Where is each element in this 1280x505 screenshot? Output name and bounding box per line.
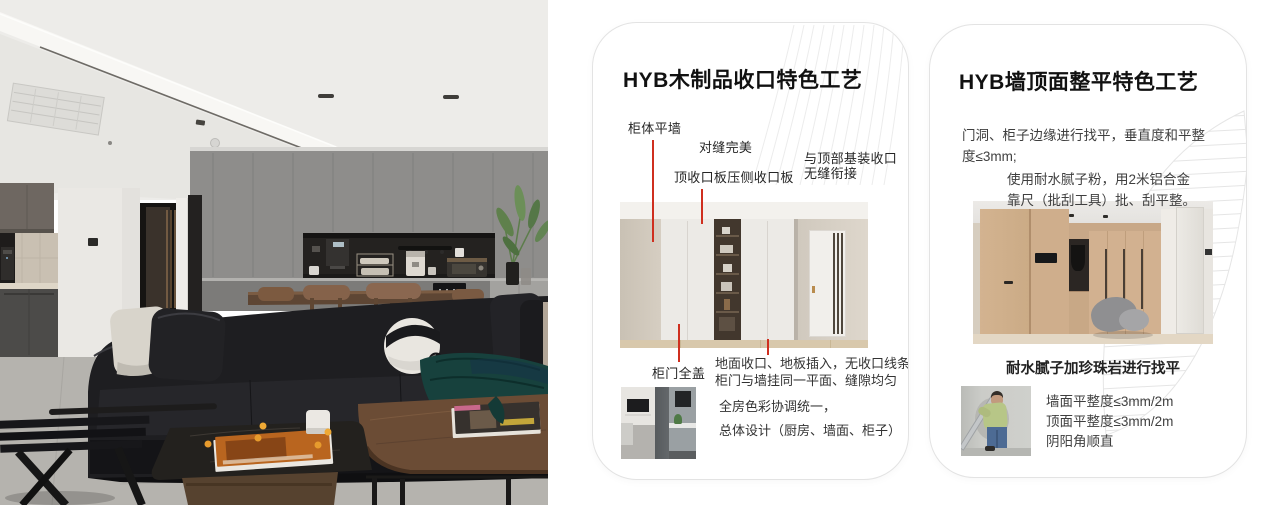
plank-line (680, 340, 681, 348)
leader-line-top-panel (701, 189, 703, 224)
leader-line-wall-flush (652, 140, 654, 242)
p2-wall-object (1205, 249, 1212, 255)
wardrobe-photo-caption: 耐水腻子加珍珠岩进行找平 (973, 357, 1213, 378)
p2-drawers (1069, 291, 1089, 335)
shelf-basket (719, 317, 735, 331)
render-left-wall (620, 219, 661, 340)
callout-cabinet-flush-wall: 柜体平墙 (628, 121, 681, 136)
render-cabinet-shadow (794, 219, 798, 340)
p2-downlight (1103, 215, 1108, 218)
card1-footer-line2: 总体设计（厨房、墙面、柜子） (719, 419, 901, 443)
cabinet-render-image (620, 202, 868, 348)
mini1-appliance (675, 391, 691, 407)
render-door (809, 230, 846, 337)
render-door-seam (767, 221, 768, 340)
living-room-photo (0, 0, 548, 505)
shelf-bottle (724, 299, 730, 310)
shelf-board (716, 292, 739, 294)
callout-ceiling-joint-line1: 与顶部基装收口 (804, 151, 897, 166)
mini1-plant (674, 414, 682, 424)
result-ceiling-flatness: 顶面平整度≤3mm/2m (1046, 412, 1173, 432)
card-wall-leveling-craft: HYB墙顶面整平特色工艺 门洞、柜子边缘进行找平，垂直度和平整度≤3mm; 使用… (929, 24, 1247, 478)
door-slat (833, 233, 835, 334)
p2-door-handle (1004, 281, 1013, 284)
page: HYB木制品收口特色工艺 柜体平墙 对缝完美 顶收口板压侧收口板 与顶部基装收口… (0, 0, 1280, 505)
leader-line-floor-joint (767, 339, 769, 355)
shelf-board (716, 235, 739, 237)
door-slat (837, 233, 839, 334)
p2-white-door (1176, 207, 1204, 334)
p2-hanging-clothes (1071, 245, 1085, 271)
card2-paragraph-putty-line2: 靠尺（批刮工具）批、刮平整。 (1007, 190, 1196, 211)
card1-title: HYB木制品收口特色工艺 (623, 64, 862, 94)
shelf-item (723, 264, 732, 272)
callout-full-cover-door: 柜门全盖 (652, 366, 705, 381)
shelf-board (716, 273, 739, 275)
shelf-board (716, 254, 739, 256)
living-room-photo-art (0, 0, 548, 505)
color-scheme-photo (621, 387, 696, 459)
shelf-board (716, 311, 739, 313)
mini1-console (625, 414, 651, 416)
worker-jeans-seam (996, 430, 998, 448)
card2-title: HYB墙顶面整平特色工艺 (959, 66, 1198, 96)
p2-room-beyond (1204, 209, 1213, 334)
p2-handle-slit (1141, 249, 1143, 309)
kitchen (0, 183, 58, 357)
callout-ceiling-joint-line2: 无缝衔接 (804, 166, 897, 181)
p2-left-wall (973, 223, 980, 344)
result-corners-straight: 阴阳角顺直 (1046, 432, 1173, 452)
mini1-counter (669, 423, 696, 428)
wardrobe-photo (973, 201, 1213, 344)
render-shelf-unit (714, 219, 741, 340)
card1-note-line2: 柜门与墙挂同一平面、缝隙均匀 (715, 372, 909, 389)
shelf-item (722, 227, 730, 234)
card2-result-list: 墙面平整度≤3mm/2m 顶面平整度≤3mm/2m 阴阳角顺直 (1046, 392, 1173, 452)
card1-footer-line1: 全房色彩协调统一， (719, 395, 901, 419)
plank-line (760, 340, 761, 348)
card2-paragraph-leveling: 门洞、柜子边缘进行找平，垂直度和平整度≤3mm; (962, 125, 1214, 167)
p2-control-panel (1035, 253, 1057, 263)
shelf-item (720, 245, 733, 253)
result-wall-flatness: 墙面平整度≤3mm/2m (1046, 392, 1173, 412)
plank-line (830, 340, 831, 348)
worker-photo (961, 386, 1031, 456)
worker-shoe (985, 446, 995, 451)
p2-wood-panel (1031, 209, 1069, 334)
pillow-black (148, 308, 227, 383)
card1-note-line1: 地面收口、地板插入，无收口线条 (715, 355, 909, 372)
callout-perfect-seam: 对缝完美 (699, 140, 752, 155)
render-floor (620, 340, 868, 348)
callout-ceiling-joint: 与顶部基装收口 无缝衔接 (804, 151, 897, 181)
mini1-sofa (621, 423, 633, 445)
door-handle (812, 286, 815, 293)
render-door-seam (687, 221, 688, 340)
p2-downlight (1069, 214, 1074, 217)
card-wood-finish-craft: HYB木制品收口特色工艺 柜体平墙 对缝完美 顶收口板压侧收口板 与顶部基装收口… (592, 22, 909, 480)
card2-paragraph-putty: 使用耐水腻子粉，用2米铝合金 靠尺（批刮工具）批、刮平整。 (1007, 169, 1196, 211)
card2-paragraph-putty-line1: 使用耐水腻子粉，用2米铝合金 (1007, 169, 1196, 190)
card1-footer: 全房色彩协调统一， 总体设计（厨房、墙面、柜子） (719, 395, 901, 443)
shelf-item (721, 282, 732, 291)
p2-bean-bag (1119, 309, 1149, 331)
p2-shadow (1093, 331, 1153, 339)
p2-wood-door (980, 209, 1031, 334)
mini1-tv (627, 399, 649, 412)
mini1-kick (669, 451, 696, 459)
coffee-niche (303, 233, 495, 278)
callout-top-closing-panel: 顶收口板压侧收口板 (674, 170, 794, 185)
leader-line-full-cover (678, 324, 680, 362)
render-ceiling (620, 202, 868, 220)
p2-bright-opening (1161, 209, 1176, 334)
mini1-gray-column (655, 387, 669, 459)
card1-note: 地面收口、地板插入，无收口线条 柜门与墙挂同一平面、缝隙均匀 (715, 355, 909, 389)
worker-floor (961, 448, 1031, 456)
door-slat (841, 233, 843, 334)
